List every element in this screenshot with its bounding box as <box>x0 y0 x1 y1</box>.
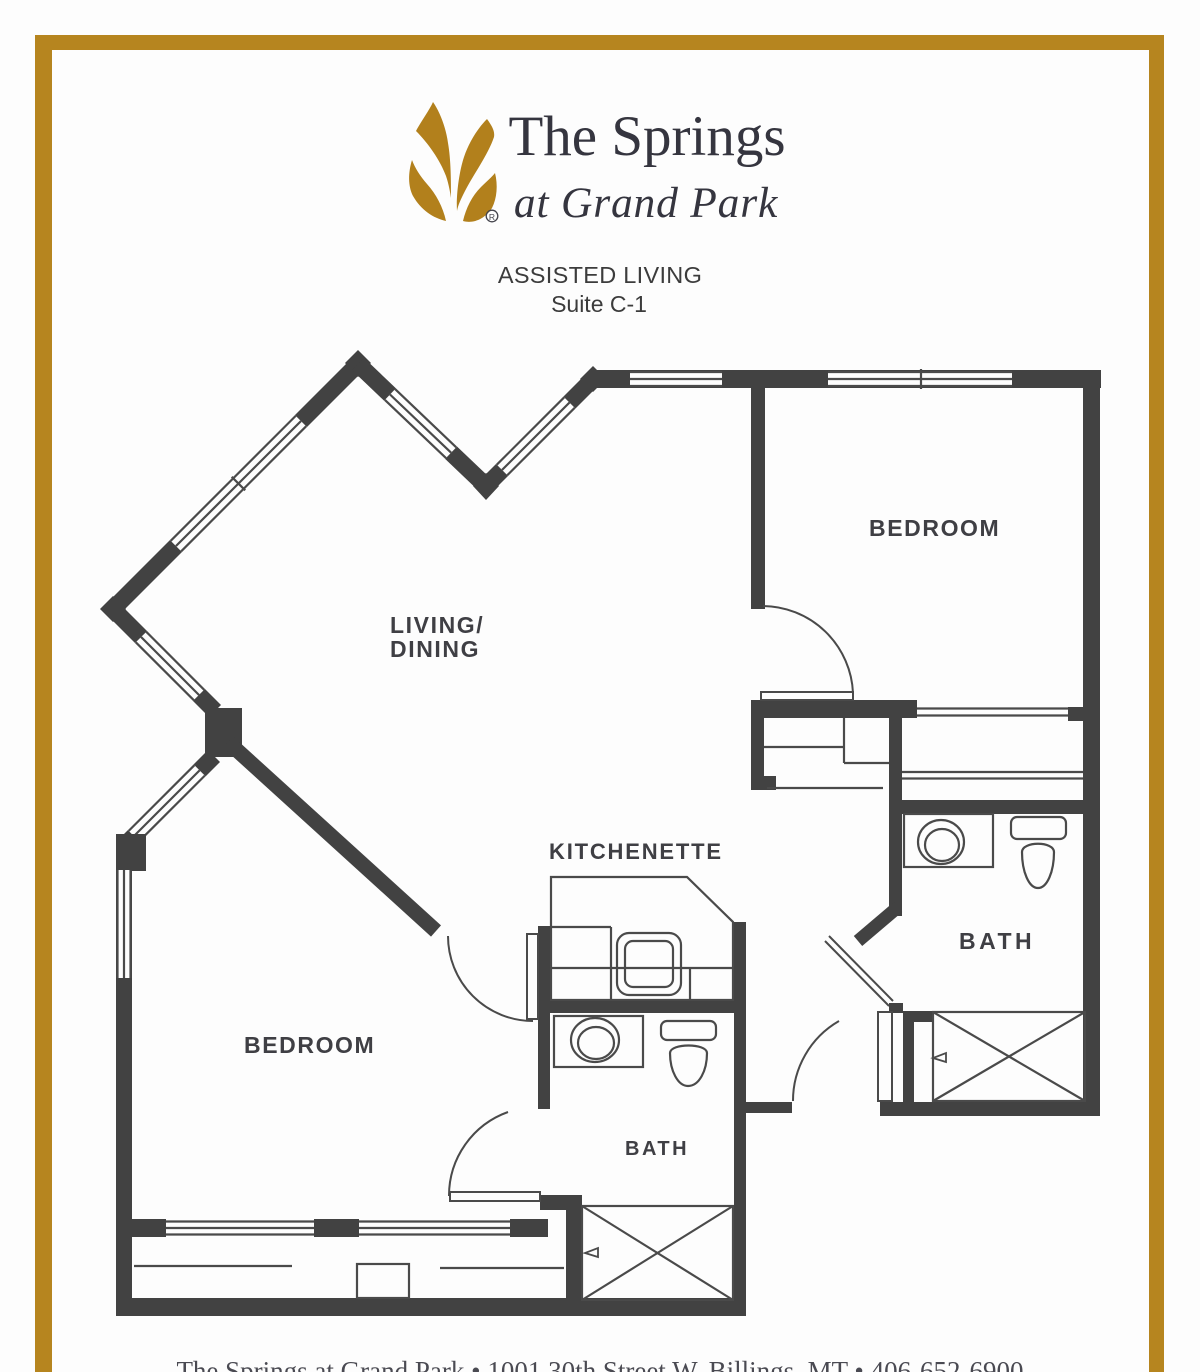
svg-text:Suite C-1: Suite C-1 <box>551 291 647 317</box>
svg-text:DINING: DINING <box>390 636 480 662</box>
svg-text:BEDROOM: BEDROOM <box>869 515 1000 541</box>
svg-text:BEDROOM: BEDROOM <box>244 1032 375 1058</box>
svg-text:BATH: BATH <box>959 928 1035 954</box>
svg-text:ASSISTED LIVING: ASSISTED LIVING <box>498 262 702 288</box>
svg-text:R: R <box>489 212 495 222</box>
svg-text:LIVING/: LIVING/ <box>390 612 484 638</box>
svg-text:at Grand Park: at Grand Park <box>514 179 778 227</box>
svg-text:BATH: BATH <box>625 1138 689 1160</box>
svg-text:KITCHENETTE: KITCHENETTE <box>549 839 723 864</box>
svg-text:The Springs: The Springs <box>508 105 785 168</box>
svg-text:The Springs at Grand Park • 10: The Springs at Grand Park • 1001 30th St… <box>176 1356 1023 1372</box>
